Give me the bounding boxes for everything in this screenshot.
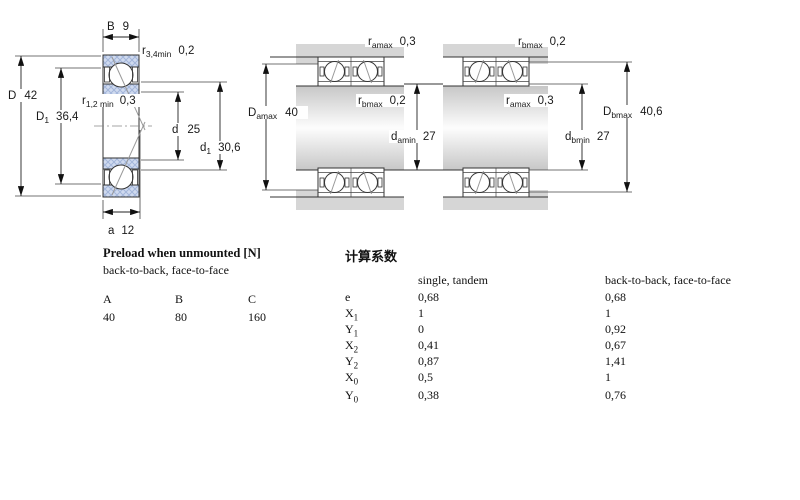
bearing-pair-bottom (463, 168, 529, 197)
preload-col-a-header: A (103, 292, 175, 307)
factor-value-single: 0,41 (418, 337, 605, 353)
dim-label-B: B9 (107, 21, 129, 33)
bearing-pair-top (318, 57, 384, 86)
factor-row-x0: X0 0,5 1 (345, 369, 785, 385)
factor-value-single: 0,38 (418, 387, 605, 403)
dim-label-D1: D136,4 (36, 111, 79, 125)
preload-header-row: A B C (103, 292, 383, 307)
preload-value-row: 40 80 160 (103, 310, 383, 325)
factor-row-y1: Y1 0 0,92 (345, 321, 785, 337)
ball-top (109, 63, 133, 87)
factors-col1-header: single, tandem (418, 272, 605, 289)
factors-table: 计算系数 single, tandem back-to-back, face-t… (345, 246, 785, 403)
factor-value-paired: 1,41 (605, 353, 785, 369)
preload-table: Preload when unmounted [N] back-to-back,… (103, 246, 383, 325)
preload-value-a: 40 (103, 310, 175, 325)
factor-value-single: 0,87 (418, 353, 605, 369)
technical-drawing-panel: B9 r3,4min0,2 D42 D136,4 r1,2 min0,3 d25… (0, 0, 800, 244)
factor-value-single: 1 (418, 305, 605, 321)
factor-symbol: Y0 (345, 387, 418, 403)
factor-value-paired: 0,67 (605, 337, 785, 353)
factor-value-single: 0 (418, 321, 605, 337)
factor-symbol: X1 (345, 305, 418, 321)
factor-row-y2: Y2 0,87 1,41 (345, 353, 785, 369)
factor-symbol: e (345, 289, 418, 305)
factor-value-single: 0,5 (418, 369, 605, 385)
preload-col-b-header: B (175, 292, 248, 307)
factors-header-row: single, tandem back-to-back, face-to-fac… (345, 272, 785, 289)
factor-row-e: e 0,68 0,68 (345, 289, 785, 305)
factor-symbol: X0 (345, 369, 418, 385)
factor-symbol: X2 (345, 337, 418, 353)
factor-row-x2: X2 0,41 0,67 (345, 337, 785, 353)
preload-subtitle: back-to-back, face-to-face (103, 263, 383, 278)
preload-title: Preload when unmounted [N] (103, 246, 383, 261)
preload-col-c-header: C (248, 292, 308, 307)
factor-value-paired: 1 (605, 305, 785, 321)
factor-symbol: Y1 (345, 321, 418, 337)
factors-col2-header: back-to-back, face-to-face (605, 272, 785, 289)
factor-row-y0: Y0 0,38 0,76 (345, 387, 785, 403)
dim-label-r34min: r3,4min0,2 (142, 45, 194, 59)
factor-value-paired: 1 (605, 369, 785, 385)
dim-label-a: a12 (108, 225, 134, 237)
factor-value-paired: 0,68 (605, 289, 785, 305)
factor-value-paired: 0,92 (605, 321, 785, 337)
bearing-datasheet-page: { "drawings": { "d1": { "B": {"sym":"B",… (0, 0, 800, 500)
mounting-dimensions-drawing-a: ramax0,3 Damax40 rbmax0,2 damin27 (246, 35, 443, 210)
mounting-dimensions-drawing-b: rbmax0,2 ramax0,3 Dbmax40,6 dbmin27 (443, 35, 668, 210)
factor-value-single: 0,68 (418, 289, 605, 305)
ball-bottom (109, 165, 133, 189)
bearing-pair-top (463, 57, 529, 86)
bearing-pair-bottom (318, 168, 384, 197)
factor-symbol: Y2 (345, 353, 418, 369)
dim-label-d1: d130,6 (200, 142, 241, 156)
preload-value-b: 80 (175, 310, 248, 325)
factor-value-paired: 0,76 (605, 387, 785, 403)
bearing-cross-section-drawing: B9 r3,4min0,2 D42 D136,4 r1,2 min0,3 d25… (6, 21, 242, 237)
factors-title: 计算系数 (345, 246, 785, 265)
preload-value-c: 160 (248, 310, 308, 325)
factor-row-x1: X1 1 1 (345, 305, 785, 321)
